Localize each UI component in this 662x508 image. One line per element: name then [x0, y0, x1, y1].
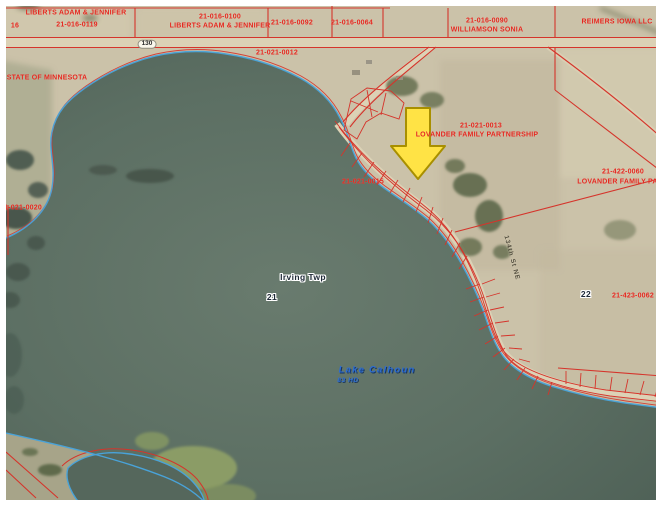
map-canvas[interactable]: LIBERTS ADAM & JENNIFER1621-016-011921-0… — [6, 6, 656, 500]
aerial-map-graphic — [6, 6, 656, 500]
map-window: LIBERTS ADAM & JENNIFER1621-016-011921-0… — [0, 0, 662, 508]
top-road — [6, 38, 656, 47]
